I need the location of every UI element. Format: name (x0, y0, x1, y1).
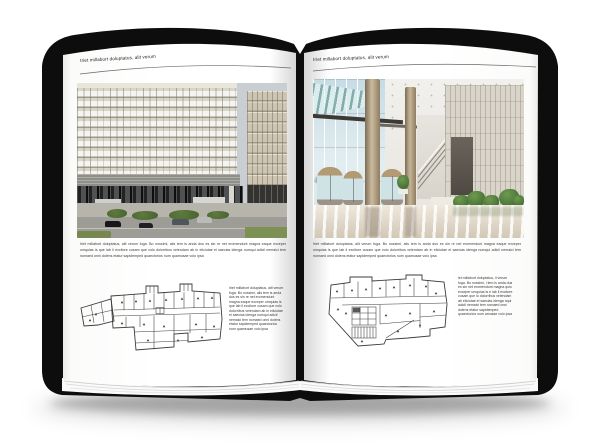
left-page-caption: Iriet millabort doluptatus, alit verum f… (80, 241, 286, 259)
revolving-door (343, 171, 363, 205)
recessed-doorway (451, 137, 473, 195)
right-page-caption: Iriet millabort doluptatus, alit verum f… (313, 241, 521, 259)
plant-reflection (453, 207, 523, 216)
lawn (77, 231, 111, 238)
office-facade (77, 88, 237, 174)
column-reflection (365, 207, 380, 237)
bush (132, 211, 158, 220)
left-page-side-column: Iriet millabort doluptatus, alit verum f… (229, 286, 284, 331)
revolving-door (317, 167, 343, 205)
neighbor-building-base (247, 185, 287, 203)
car (105, 221, 121, 227)
car (172, 219, 189, 225)
book-mockup-scene: Iriet millabort doluptatus, alit verum I… (0, 0, 600, 446)
planter (398, 189, 408, 194)
lawn (245, 227, 287, 238)
potted-plant (397, 175, 409, 189)
column-reflection (405, 207, 416, 237)
right-page-photo-lobby-interior (313, 79, 524, 238)
facade-parapet (77, 83, 237, 88)
car (139, 223, 153, 228)
car (197, 217, 212, 223)
bush (107, 209, 127, 218)
left-page-photo-building-exterior (77, 83, 287, 238)
right-page-side-column: iet millabort doluptatus, il verum fuga.… (458, 276, 514, 317)
mezzanine-band (77, 174, 240, 186)
